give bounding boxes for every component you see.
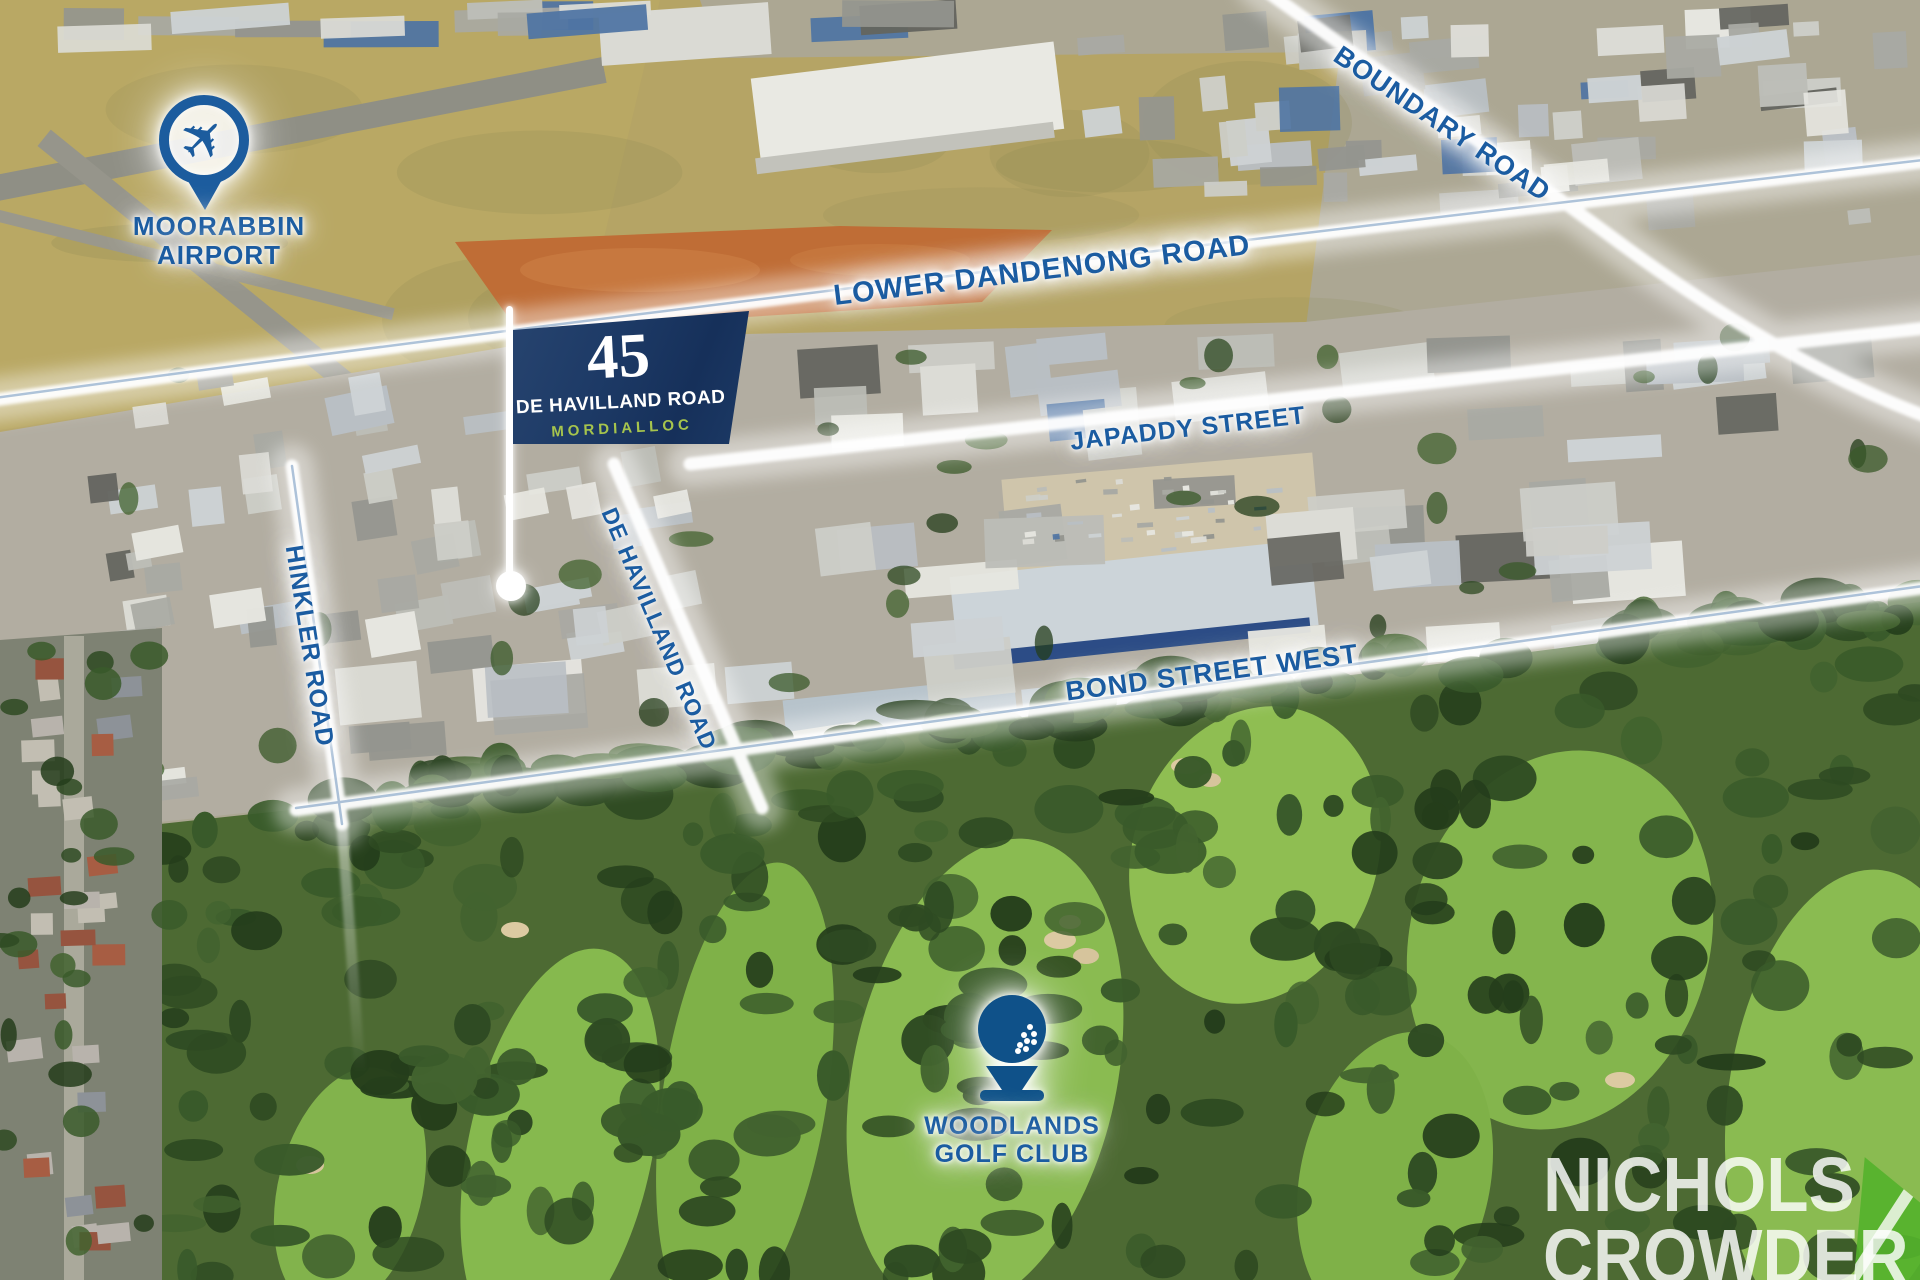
brand-logo-line1: NICHOLS bbox=[1543, 1150, 1909, 1222]
golf-ball-tee-icon bbox=[952, 988, 1072, 1128]
moorabbin-airport-label: MOORABBIN AIRPORT bbox=[133, 212, 305, 270]
property-location-dot bbox=[496, 571, 526, 601]
woodlands-golf-club-label: WOODLANDS GOLF CLUB bbox=[924, 1112, 1100, 1168]
property-suburb: MORDIALLOC bbox=[516, 414, 729, 442]
property-street-name: DE HAVILLAND ROAD bbox=[514, 386, 727, 419]
brand-logo-line2: CROWDER bbox=[1543, 1222, 1909, 1280]
aerial-map-scene: ✈ MOORABBIN AIRPORT WOODLANDS GOLF CLUB … bbox=[0, 0, 1920, 1280]
property-flag-pole bbox=[506, 306, 513, 588]
property-street-number: 45 bbox=[511, 322, 726, 393]
brand-logo: NICHOLS CROWDER bbox=[1543, 1150, 1920, 1280]
plane-pin-icon: ✈ bbox=[124, 52, 284, 222]
residential-area bbox=[0, 628, 187, 1280]
